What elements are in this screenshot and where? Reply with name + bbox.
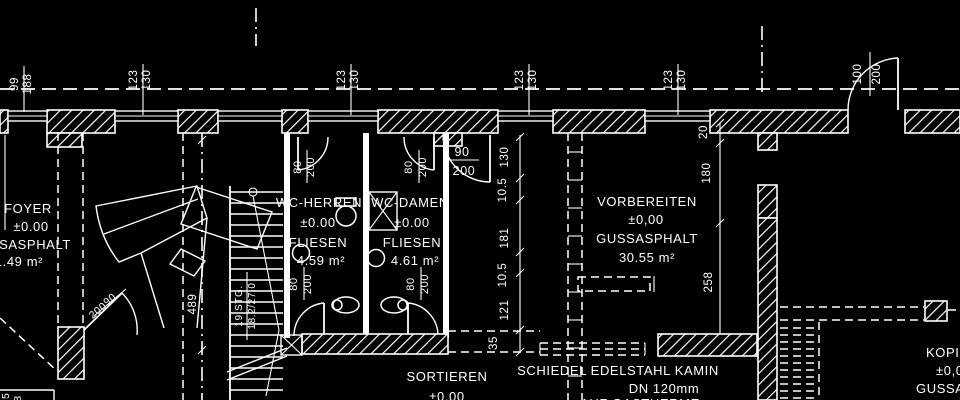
label-auf-gastherme: AUF GASTHERME	[580, 396, 700, 400]
window-unlabeled	[218, 111, 282, 121]
label-4-59-m: 4.59 m²	[297, 253, 345, 268]
column	[925, 301, 947, 321]
foyer-furniture	[96, 186, 272, 328]
label-130: 130	[349, 70, 361, 91]
dimension-chain-right	[716, 119, 724, 356]
label-200: 200	[871, 64, 883, 85]
label-dn-120mm: DN 120mm	[629, 381, 700, 396]
label-4-61-m: 4.61 m²	[391, 253, 439, 268]
label-121: 121	[499, 300, 511, 321]
label-90: 90	[454, 145, 469, 159]
label-200: 200	[302, 274, 314, 294]
label-123: 123	[663, 70, 675, 91]
label-130: 130	[499, 147, 511, 168]
label-18-2-27-0: 18.2/27.0	[247, 282, 258, 329]
label-30-55-m: 30.55 m²	[619, 250, 675, 265]
label-0-00: ±0.00	[429, 389, 464, 400]
label-258: 258	[703, 272, 715, 293]
vorbereiten-room	[540, 133, 777, 400]
label-sortieren: SORTIEREN	[406, 369, 487, 384]
label-130: 130	[141, 70, 153, 91]
label-181: 181	[499, 228, 511, 249]
label-123: 123	[128, 70, 140, 91]
label-19-stg: 19 STG.	[234, 285, 245, 326]
label-wc-herren: WC-HERREN	[276, 195, 362, 210]
label-200: 200	[417, 157, 429, 177]
label-80: 80	[292, 160, 304, 173]
floor-plan-drawing: 9918812313012313012313012313010020013010…	[0, 0, 960, 400]
label-123: 123	[336, 70, 348, 91]
label-130: 130	[676, 70, 688, 91]
label-45: 45	[0, 393, 12, 400]
future-wall-dashed	[540, 343, 645, 355]
label-123: 123	[514, 70, 526, 91]
demolition-wall-left	[568, 133, 582, 400]
label-100: 100	[852, 64, 864, 85]
label-20: 20	[698, 125, 710, 139]
label-gussasphalt: GUSSASPHALT	[0, 237, 71, 252]
window-123x130-2	[308, 111, 378, 121]
label-200: 200	[419, 274, 431, 294]
floor-plan-screenshot: 9918812313012313012313012313010020013010…	[0, 0, 960, 400]
label-gussasphalt: GUSSASPHALT	[596, 231, 698, 246]
label-80: 80	[403, 160, 415, 173]
label-180: 180	[701, 163, 713, 184]
label-99: 99	[9, 77, 21, 91]
rubble-wall-texture	[780, 322, 819, 400]
label-35: 35	[488, 336, 500, 350]
label-31-49-m: 31.49 m²	[0, 254, 43, 269]
label-schiedel-edelstahl-kamin: SCHIEDEL EDELSTAHL KAMIN	[517, 363, 719, 378]
label-fliesen: FLIESEN	[383, 235, 441, 250]
label-gussasphalt: GUSSASPHALT	[916, 381, 960, 396]
label-80: 80	[288, 277, 300, 290]
label-wc-damen: WC-DAMEN	[371, 195, 449, 210]
window-99x188	[8, 111, 47, 121]
label-0-00: ±0,00	[936, 363, 960, 378]
label-0-00: ±0,00	[628, 212, 663, 227]
label-188: 188	[22, 74, 34, 95]
label-foyer: FOYER	[4, 201, 52, 216]
label-200: 200	[453, 164, 476, 178]
label-489: 489	[187, 294, 199, 315]
label-10-5: 10.5	[497, 263, 509, 288]
window-123x130-3	[498, 111, 553, 121]
label-10-5: 10.5	[497, 178, 509, 203]
label-0-00: ±0.00	[13, 219, 48, 234]
label-kopieren: KOPIEREN	[926, 345, 960, 360]
label-vorbereiten: VORBEREITEN	[597, 194, 697, 209]
label-200: 200	[305, 157, 317, 177]
label-130: 130	[527, 70, 539, 91]
label-0-00: ±0.00	[300, 215, 335, 230]
wall-right-piers	[758, 185, 777, 400]
wc-bottom-wall	[281, 334, 448, 355]
label-80: 80	[405, 277, 417, 290]
label-fliesen: FLIESEN	[289, 235, 347, 250]
label-188: 188	[12, 395, 24, 400]
vorbereiten-bottom-wall	[658, 334, 757, 356]
label-0-00: ±0.00	[394, 215, 429, 230]
window-123x130-1	[115, 111, 178, 121]
